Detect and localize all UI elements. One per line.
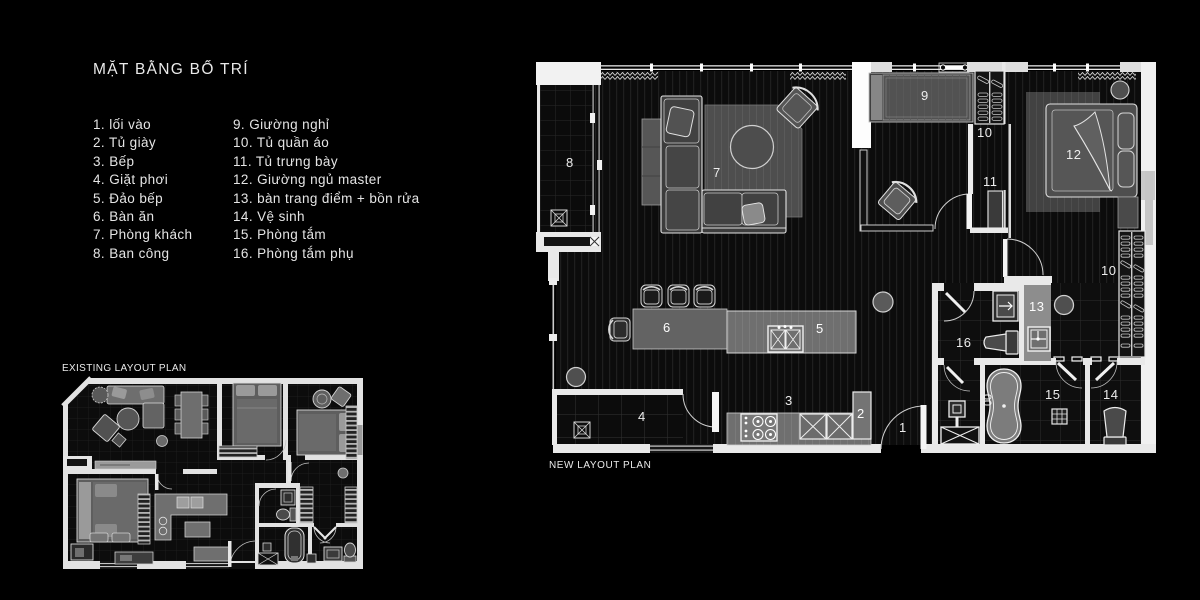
svg-text:10: 10: [977, 125, 992, 140]
svg-text:14: 14: [1103, 387, 1118, 402]
svg-text:6: 6: [663, 320, 671, 335]
svg-text:3: 3: [785, 393, 793, 408]
svg-text:11: 11: [983, 174, 998, 189]
svg-text:7: 7: [713, 165, 721, 180]
svg-text:16: 16: [956, 335, 971, 350]
svg-text:2: 2: [857, 406, 865, 421]
svg-text:4: 4: [638, 409, 646, 424]
svg-text:15: 15: [1045, 387, 1060, 402]
svg-text:13: 13: [1029, 299, 1044, 314]
svg-text:10: 10: [1101, 263, 1116, 278]
svg-text:12: 12: [1066, 147, 1081, 162]
svg-text:8: 8: [566, 155, 574, 170]
svg-text:9: 9: [921, 88, 929, 103]
svg-text:1: 1: [899, 420, 907, 435]
svg-text:5: 5: [816, 321, 824, 336]
